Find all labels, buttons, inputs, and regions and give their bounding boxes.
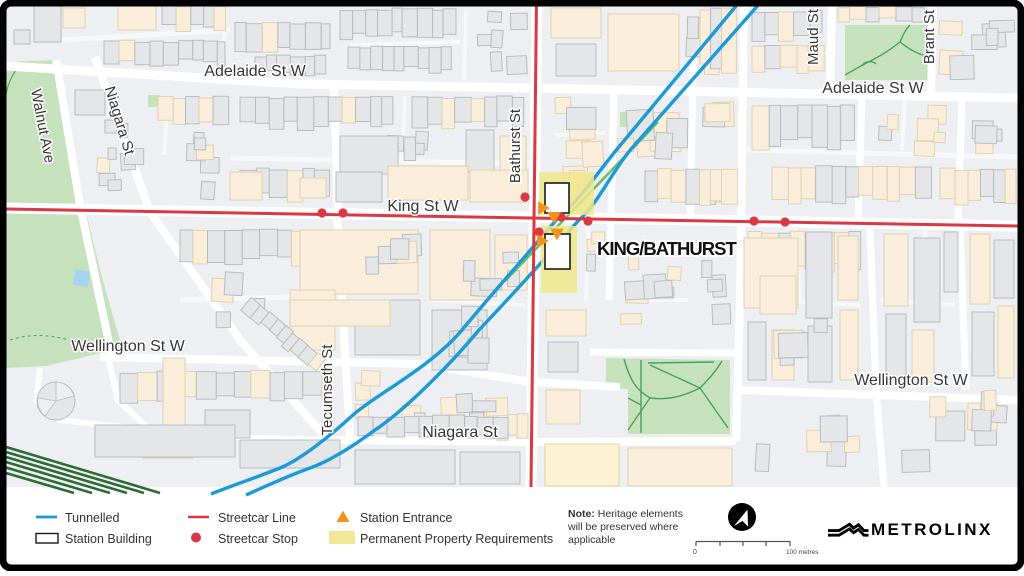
svg-text:applicable: applicable: [568, 534, 615, 546]
svg-text:METROLINX: METROLINX: [871, 520, 993, 539]
svg-text:Adelaide St W: Adelaide St W: [204, 63, 306, 80]
svg-text:Brant St: Brant St: [921, 9, 938, 64]
svg-text:0: 0: [693, 549, 697, 556]
svg-text:Niagara St: Niagara St: [422, 424, 498, 441]
svg-text:Station Entrance: Station Entrance: [360, 511, 452, 525]
svg-text:Bathurst St: Bathurst St: [507, 108, 524, 183]
svg-text:Note: Heritage elements: Note: Heritage elements: [568, 508, 683, 520]
svg-text:KING/BATHURST: KING/BATHURST: [597, 238, 737, 259]
svg-text:Tecumseth St: Tecumseth St: [319, 344, 336, 436]
svg-text:King St W: King St W: [387, 198, 459, 215]
svg-text:Tunnelled: Tunnelled: [65, 511, 119, 525]
svg-text:Adelaide St W: Adelaide St W: [822, 80, 924, 97]
svg-text:100 metres: 100 metres: [786, 549, 819, 556]
svg-text:Maud St: Maud St: [805, 8, 822, 65]
svg-text:Streetcar Line: Streetcar Line: [218, 511, 296, 525]
svg-text:Permanent Property Requirement: Permanent Property Requirements: [360, 532, 553, 546]
svg-text:Station Building: Station Building: [65, 532, 152, 546]
svg-text:will be preserved where: will be preserved where: [567, 521, 678, 533]
svg-text:Streetcar Stop: Streetcar Stop: [218, 532, 298, 546]
svg-text:Wellington St W: Wellington St W: [71, 338, 185, 355]
svg-text:Wellington St W: Wellington St W: [854, 372, 968, 389]
